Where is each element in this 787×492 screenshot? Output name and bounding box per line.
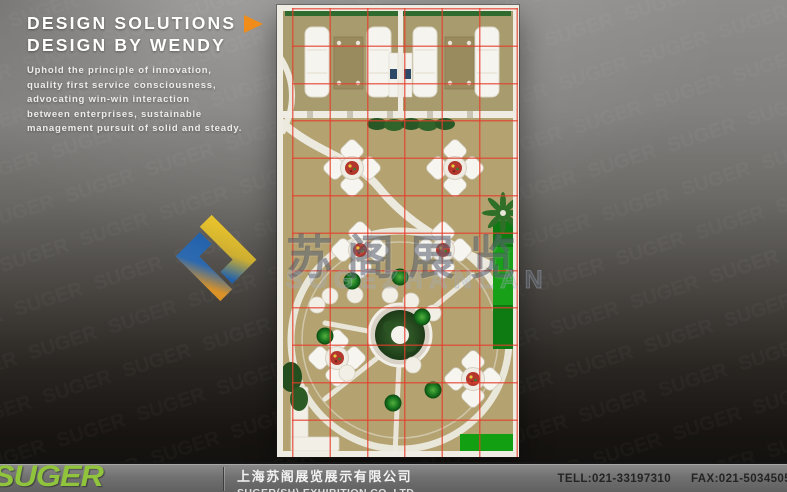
company-block: 上海苏阁展览展示有限公司 SUGER(SH) EXHIBITION CO.,LT…	[237, 466, 414, 492]
description-line: Uphold the principle of innovation,	[27, 64, 263, 79]
title-line-2: DESIGN BY WENDY	[27, 34, 236, 56]
description-line: management pursuit of solid and steady.	[27, 122, 263, 137]
footer-bar: SUGER 上海苏阁展览展示有限公司 SUGER(SH) EXHIBITION …	[0, 462, 787, 492]
presentation-slide: SUGER DESIGN SOLUTIONS DESIGN BY WENDY U…	[0, 0, 787, 492]
contact-fax: FAX:021-5034505	[691, 473, 787, 485]
description-text: Uphold the principle of innovation, qual…	[27, 64, 263, 137]
contact-tel: TELL:021-33197310	[557, 473, 671, 485]
description-line: advocating win-win interaction	[27, 93, 263, 108]
description-line: quality first service consciousness,	[27, 79, 263, 94]
brand-logo-icon	[156, 202, 276, 314]
company-name-cn: 上海苏阁展览展示有限公司	[237, 466, 414, 485]
footer-divider	[223, 467, 224, 491]
company-name-en: SUGER(SH) EXHIBITION CO.,LTD	[237, 487, 414, 492]
watermark-pinyin: SUGEZHANLAN	[286, 266, 549, 295]
suger-logo: SUGER	[0, 462, 103, 492]
header-block: DESIGN SOLUTIONS DESIGN BY WENDY Uphold …	[27, 12, 263, 137]
arrow-right-icon	[244, 15, 263, 33]
title-line-1: DESIGN SOLUTIONS	[27, 12, 236, 34]
contact-info: TELL:021-33197310FAX:021-5034505	[557, 473, 787, 485]
description-line: between enterprises, sustainable	[27, 108, 263, 123]
